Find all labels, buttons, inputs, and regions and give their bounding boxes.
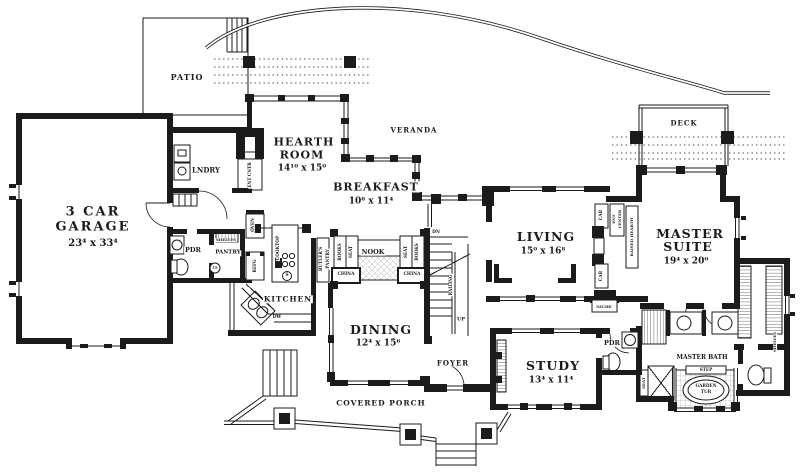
label-study: STUDY bbox=[525, 360, 581, 373]
label-dining-dims: 12⁴ x 15⁶ bbox=[355, 340, 402, 349]
label-master-bath: MASTER BATH bbox=[675, 355, 728, 361]
label-butlers-line2: PANTRY bbox=[326, 248, 330, 269]
label-pdr-right: PDR bbox=[603, 340, 621, 347]
label-covered-porch: COVERED PORCH bbox=[335, 399, 426, 407]
label-ent-center-line1: ENT bbox=[612, 213, 616, 224]
label-garage-dims: 23⁴ x 33⁴ bbox=[67, 239, 119, 249]
label-books-left: BOOKS bbox=[338, 242, 342, 262]
label-kitchen: KITCHEN bbox=[263, 295, 313, 303]
label-seat-right: SEAT bbox=[404, 245, 408, 259]
label-lndry: LNDRY bbox=[191, 167, 221, 174]
label-cooktop: COOKTOP bbox=[276, 235, 280, 261]
label-living: LIVING bbox=[516, 231, 576, 244]
label-hearth-dims: 14¹⁰ x 15⁰ bbox=[277, 165, 328, 174]
label-garage-line1: 3 CAR bbox=[65, 206, 122, 219]
label-study-dims: 13⁴ x 11⁴ bbox=[528, 377, 575, 386]
label-breakfast: BREAKFAST bbox=[332, 182, 420, 193]
label-books-right: BOOKS bbox=[415, 242, 419, 262]
label-lazy-susan: LS bbox=[212, 266, 219, 270]
label-master-line2: SUITE bbox=[662, 241, 714, 254]
label-ent-center-line2: CENTER bbox=[618, 209, 622, 229]
label-foyer: FOYER bbox=[436, 360, 470, 367]
label-dw: DW bbox=[272, 316, 283, 320]
label-dining: DINING bbox=[349, 324, 413, 337]
label-railing: RAILING bbox=[449, 274, 453, 297]
label-pdr-left: PDR bbox=[184, 247, 202, 254]
label-cab-lower: CAB bbox=[599, 270, 603, 282]
floor-plan: PATIO3 CARGARAGE23⁴ x 33⁴LNDRYENT CNTRHE… bbox=[0, 0, 800, 472]
label-oven: OVEN bbox=[251, 217, 255, 233]
label-living-dims: 15⁰ x 16⁸ bbox=[520, 248, 567, 257]
label-shelves-closet: SHELVES bbox=[773, 331, 777, 353]
label-ent-cntr: ENT CNTR bbox=[248, 161, 252, 188]
label-garage-line2: GARAGE bbox=[54, 221, 131, 234]
label-seat-left: SEAT bbox=[349, 245, 353, 259]
label-nook: NOOK bbox=[361, 249, 386, 256]
label-hearth-line1: HEARTH bbox=[273, 137, 336, 148]
label-china-right: CHINA bbox=[402, 273, 421, 277]
label-deck: DECK bbox=[669, 120, 698, 127]
label-patio: PATIO bbox=[170, 73, 205, 81]
label-master-dims: 19⁴ x 20⁰ bbox=[663, 258, 710, 267]
label-china-left: CHINA bbox=[336, 273, 355, 277]
label-seat-shower: SEAT bbox=[642, 376, 646, 390]
label-up: UP bbox=[456, 318, 466, 323]
label-breakfast-dims: 10⁸ x 11⁴ bbox=[348, 198, 395, 207]
room-labels: PATIO3 CARGARAGE23⁴ x 33⁴LNDRYENT CNTRHE… bbox=[0, 0, 800, 472]
label-shelves-pantry: SHELVES bbox=[215, 238, 237, 242]
label-stove-s: S bbox=[284, 274, 289, 279]
label-hearth-line2: ROOM bbox=[279, 150, 325, 161]
label-butlers-line1: BUTLER'S bbox=[319, 246, 323, 272]
label-step: STEP bbox=[699, 368, 713, 372]
label-raised-hearth: RAISED HEARTH bbox=[630, 216, 634, 257]
label-garden-tub-line1: GARDEN bbox=[695, 384, 718, 388]
label-garden-tub-line2: TUB bbox=[700, 390, 712, 394]
label-refg: REFG bbox=[253, 258, 257, 273]
label-dn: DN bbox=[431, 231, 441, 235]
label-pantry: PANTRY bbox=[214, 250, 241, 256]
label-cab-upper: CAB bbox=[599, 209, 603, 221]
label-veranda: VERANDA bbox=[390, 127, 439, 134]
label-niche: NICHE bbox=[595, 305, 613, 309]
